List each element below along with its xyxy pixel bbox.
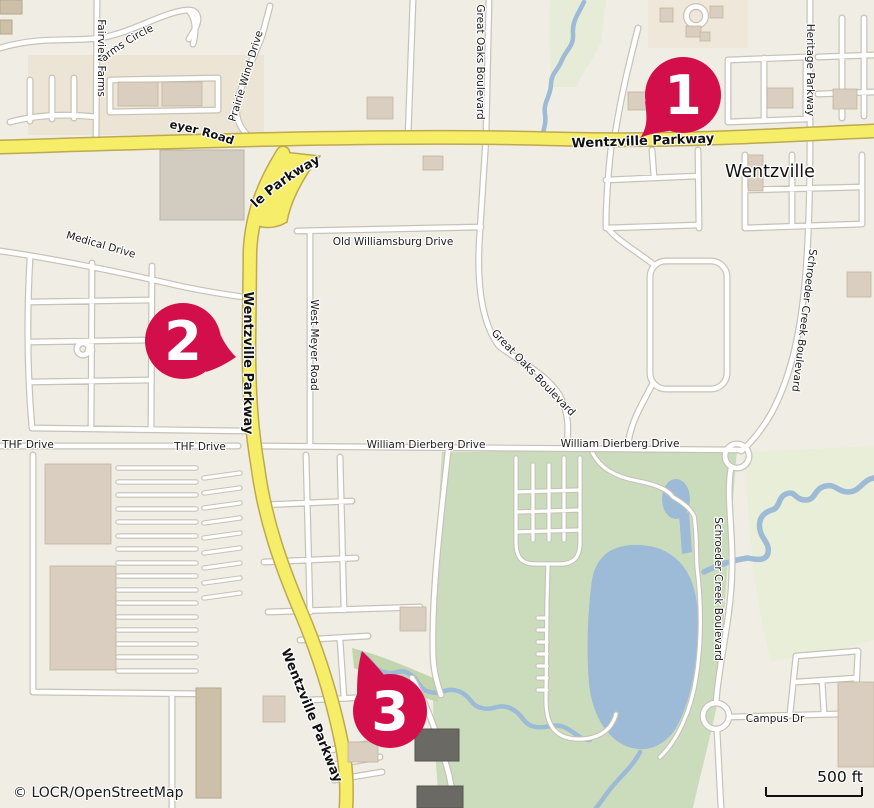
- scale-label: 500 ft: [817, 768, 863, 786]
- road-label-fairview-farms-circle: Fairview Farms Circle: [0, 0, 155, 64]
- marker-2-number: 2: [164, 310, 202, 373]
- road-label-heritage-parkway: Heritage Parkway: [804, 24, 816, 117]
- road-label-great-oaks-blvd-mid: Great Oaks Boulevard: [489, 327, 578, 418]
- road-label-campus-dr: Campus Dr: [746, 713, 805, 725]
- road-label-thf-drive-west: THF Drive: [1, 439, 54, 451]
- road-label-william-dierberg-east: William Dierberg Drive: [561, 438, 680, 450]
- road-label-schroeder-creek-south: Schroeder Creek Boulevard: [712, 517, 724, 661]
- road-label-medical-drive: Medical Drive: [65, 229, 137, 260]
- road-label-west-meyer-road-vertical: West Meyer Road: [308, 299, 320, 390]
- map-viewport[interactable]: Fairview Farms Fairview Farms Circle Pra…: [0, 0, 874, 808]
- road-label-great-oaks-blvd-north: Great Oaks Boulevard: [474, 4, 486, 119]
- marker-2[interactable]: 2: [145, 303, 236, 379]
- road-label-old-williamsburg-drive: Old Williamsburg Drive: [333, 236, 454, 248]
- road-label-thf-drive-mid: THF Drive: [173, 441, 226, 453]
- scale-bar: 500 ft: [766, 768, 863, 796]
- attribution: © LOCR/OpenStreetMap: [13, 785, 184, 801]
- map-canvas[interactable]: Fairview Farms Fairview Farms Circle Pra…: [0, 0, 874, 808]
- marker-1-number: 1: [664, 64, 702, 127]
- road-label-william-dierberg-west: William Dierberg Drive: [367, 439, 486, 451]
- marker-3-number: 3: [371, 680, 409, 743]
- road-label-wentzville-parkway-vertical: Wentzville Parkway: [240, 292, 255, 435]
- marker-1[interactable]: 1: [640, 57, 721, 138]
- city-label: Wentzville: [725, 162, 815, 182]
